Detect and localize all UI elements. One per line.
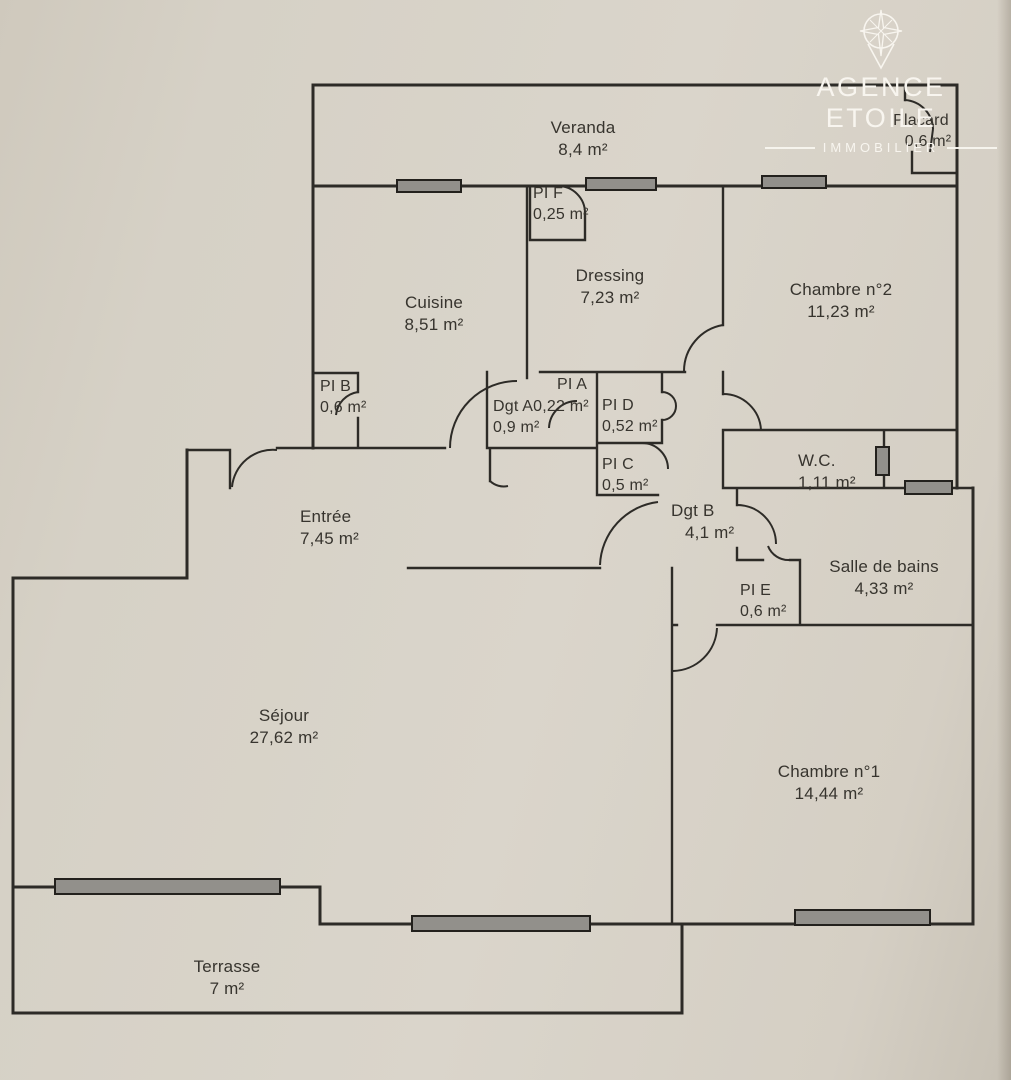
room-area: 0,6 m²	[320, 397, 367, 418]
walls	[13, 85, 973, 1013]
room-name: PI E	[740, 580, 787, 601]
room-name: Entrée	[300, 506, 359, 528]
room-label-dgtb: Dgt B 4,1 m²	[671, 500, 734, 544]
room-area: 7,45 m²	[300, 528, 359, 550]
room-area: 8,4 m²	[551, 139, 616, 161]
room-label-pic: PI C 0,5 m²	[602, 454, 649, 496]
room-name: PI A	[557, 374, 587, 395]
room-label-pib: PI B 0,6 m²	[320, 376, 367, 418]
room-name: Dgt B	[671, 500, 734, 522]
room-area: 0,5 m²	[602, 475, 649, 496]
window	[412, 916, 590, 931]
room-area: 4,33 m²	[829, 578, 939, 600]
window	[876, 447, 889, 475]
room-label-cuisine: Cuisine 8,51 m²	[404, 292, 463, 336]
room-name: Dressing	[576, 265, 645, 287]
room-label-terrasse: Terrasse 7 m²	[194, 956, 261, 1000]
room-label-pie: PI E 0,6 m²	[740, 580, 787, 622]
floorplan-drawing	[0, 0, 1011, 1080]
room-name: PI C	[602, 454, 649, 475]
room-area: 8,51 m²	[404, 314, 463, 336]
room-label-pid: PI D 0,52 m²	[602, 395, 658, 437]
agency-name: AGENCE ETOILE	[761, 72, 1001, 134]
room-name: Séjour	[250, 705, 319, 727]
room-area: 0,6 m²	[740, 601, 787, 622]
star-pin-icon	[850, 6, 912, 70]
window	[55, 879, 280, 894]
room-area: 0,52 m²	[602, 416, 658, 437]
door-arc-sejour	[600, 502, 658, 565]
door-arc-chambre2	[684, 325, 723, 371]
room-area-pia: 0,22 m²	[533, 398, 589, 415]
room-label-chambre2: Chambre n°2 11,23 m²	[790, 279, 893, 323]
room-name: Salle de bains	[829, 556, 939, 578]
room-label-chambre1: Chambre n°1 14,44 m²	[778, 761, 881, 805]
door-arc-chambre1	[673, 628, 717, 671]
room-name: Cuisine	[404, 292, 463, 314]
room-label-dgta: Dgt A0,22 m² 0,9 m²	[493, 396, 589, 438]
room-label-wc: W.C. 1,11 m²	[798, 450, 856, 494]
rule-right	[947, 147, 997, 149]
room-area: 0,25 m²	[533, 204, 589, 225]
room-label-sdb: Salle de bains 4,33 m²	[829, 556, 939, 600]
agency-logo: AGENCE ETOILE IMMOBILIER	[761, 6, 1001, 155]
room-label-dressing: Dressing 7,23 m²	[576, 265, 645, 309]
room-label-pia: PI A	[557, 374, 587, 395]
room-area: 27,62 m²	[250, 727, 319, 749]
window	[795, 910, 930, 925]
door-arc-pie	[768, 546, 790, 560]
door-arc-sdb	[737, 505, 776, 544]
room-name: W.C.	[798, 450, 856, 472]
door-arc-pid	[662, 392, 676, 420]
floorplan-photo: Veranda 8,4 m² Placard 0,6 m² PI F 0,25 …	[0, 0, 1011, 1080]
window	[586, 178, 656, 190]
room-area: 0,9 m²	[493, 417, 589, 438]
room-name: Chambre n°1	[778, 761, 881, 783]
room-label-veranda: Veranda 8,4 m²	[551, 117, 616, 161]
room-name: PI D	[602, 395, 658, 416]
room-area: 11,23 m²	[790, 301, 893, 323]
window	[762, 176, 826, 188]
rule-left	[765, 147, 815, 149]
room-area: 7 m²	[194, 978, 261, 1000]
room-label-entree: Entrée 7,45 m²	[300, 506, 359, 550]
room-name: Terrasse	[194, 956, 261, 978]
room-name: Veranda	[551, 117, 616, 139]
room-area: 7,23 m²	[576, 287, 645, 309]
window	[397, 180, 461, 192]
agency-tagline: IMMOBILIER	[823, 140, 940, 155]
room-area: 1,11 m²	[798, 472, 856, 494]
door-arc-corridor	[490, 481, 508, 486]
room-name: PI F	[533, 183, 589, 204]
room-area: 14,44 m²	[778, 783, 881, 805]
window	[905, 481, 952, 494]
door-arc-wc	[723, 394, 761, 430]
room-name: Chambre n°2	[790, 279, 893, 301]
door-arc-entree	[232, 450, 277, 487]
room-name: PI B	[320, 376, 367, 397]
room-label-pif: PI F 0,25 m²	[533, 183, 589, 225]
room-name: Dgt A	[493, 398, 533, 415]
room-area: 4,1 m²	[671, 522, 734, 544]
room-label-sejour: Séjour 27,62 m²	[250, 705, 319, 749]
